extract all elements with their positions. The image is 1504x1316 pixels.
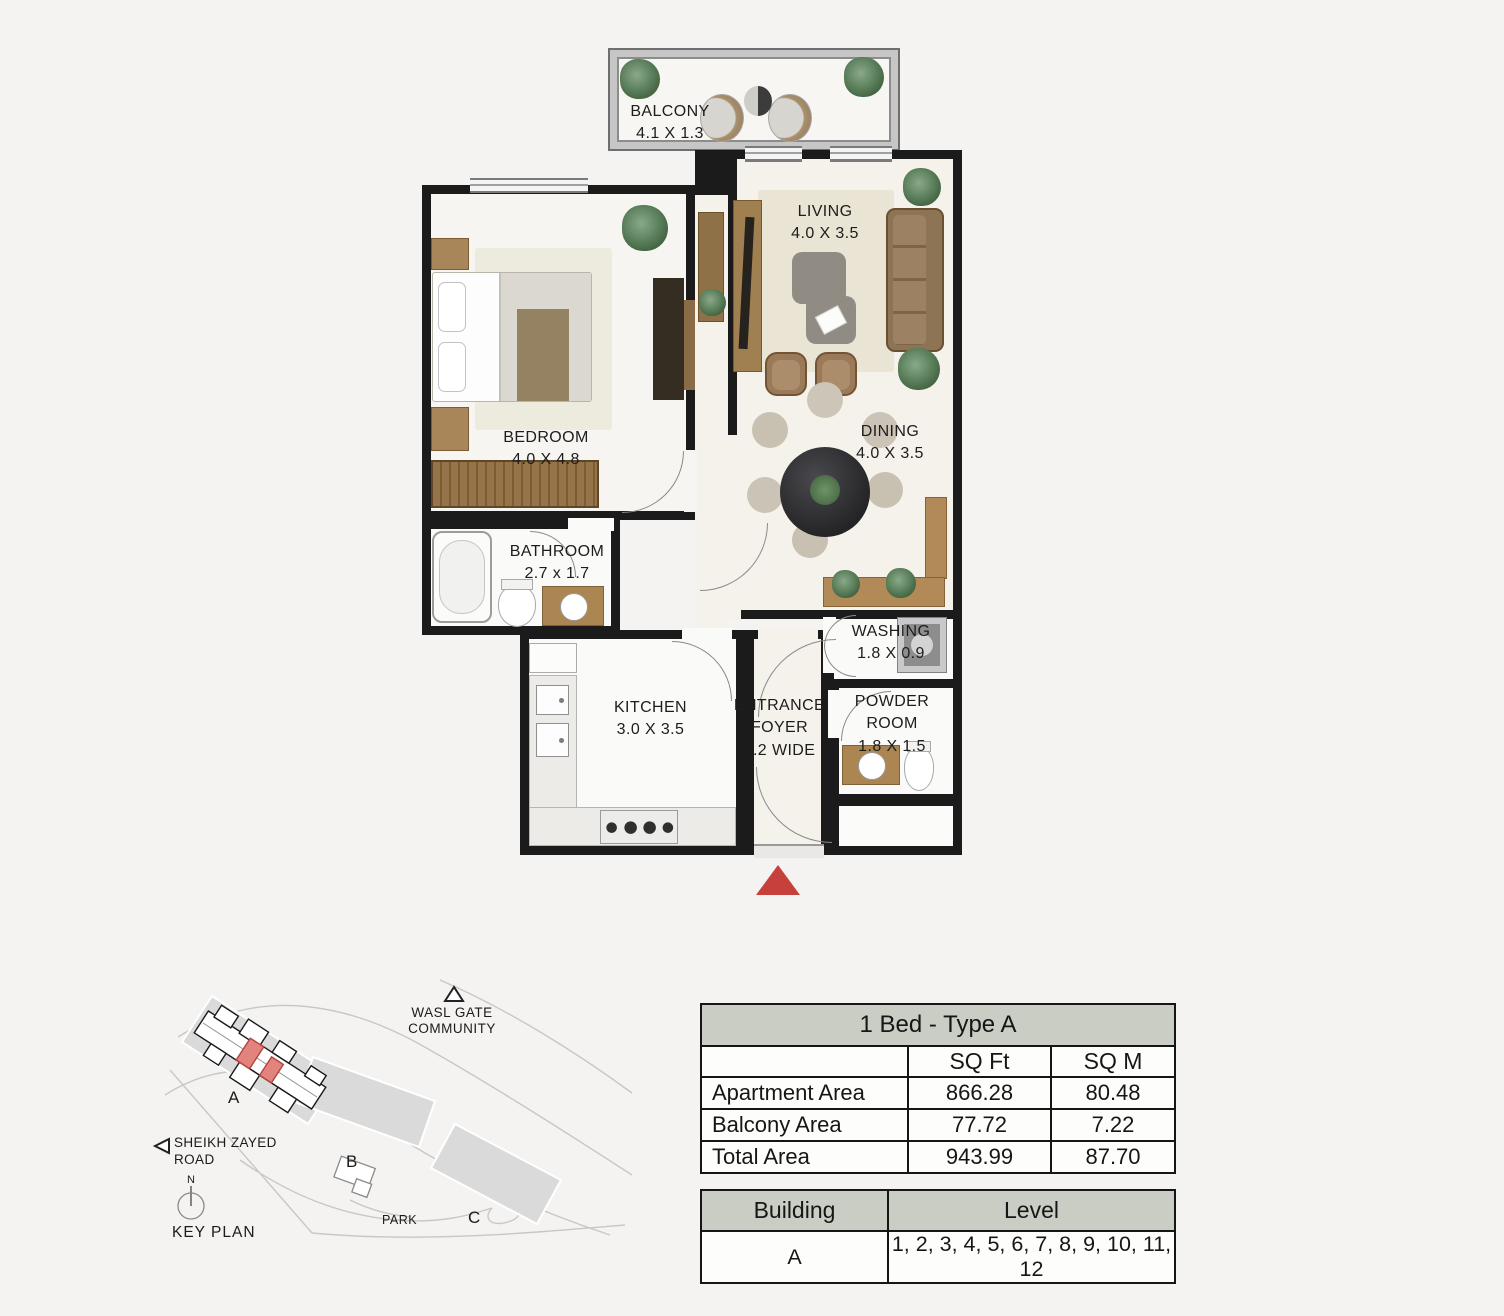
brochure-page: BALCONY 4.1 X 1.3 LIVING 4.0 X 3.5 BEDRO… (0, 0, 1504, 1316)
toilet (498, 585, 536, 627)
nightstand (431, 407, 469, 451)
bedroom-door-opening (684, 450, 697, 512)
table-row: Balcony Area 77.72 7.22 (701, 1109, 1175, 1141)
area-table: 1 Bed - Type A SQ Ft SQ M Apartment Area… (700, 1003, 1176, 1174)
room-name: BALCONY (614, 101, 726, 123)
table-row: Apartment Area 866.28 80.48 (701, 1077, 1175, 1109)
coffee-table (806, 296, 856, 344)
entrance-arrow-icon (756, 865, 800, 895)
entrance-foyer-label: ENTRANCE FOYER 1.2 WIDE (732, 695, 827, 762)
room-dims: 1.2 WIDE (732, 740, 827, 762)
kitchen-sink (536, 723, 569, 757)
living-media-unit (733, 200, 762, 372)
room-dims: 1.8 X 1.5 (846, 736, 938, 758)
balcony-side-table (744, 86, 772, 116)
area-row-sqm: 87.70 (1051, 1141, 1175, 1173)
area-table-sqft-header: SQ Ft (908, 1046, 1051, 1077)
bedroom-tv-panel (653, 278, 684, 400)
level-value: 1, 2, 3, 4, 5, 6, 7, 8, 9, 10, 11, 12 (888, 1231, 1175, 1283)
sofa (886, 208, 944, 352)
living-label: LIVING 4.0 X 3.5 (766, 201, 884, 246)
room-name: BEDROOM (486, 427, 606, 449)
entrance-opening (754, 844, 824, 858)
room-name: DINING (834, 421, 946, 443)
living-window-right (830, 146, 892, 162)
nightstand (431, 238, 469, 270)
room-dims: 4.0 X 3.5 (766, 223, 884, 245)
key-plan: WASL GATE COMMUNITY SHEIKH ZAYED ROAD A … (140, 975, 640, 1280)
bed-throw (517, 309, 569, 401)
plant (622, 205, 668, 251)
building-a-label: A (228, 1088, 240, 1107)
service-void (830, 797, 962, 855)
bathtub (432, 531, 492, 623)
area-table-title: 1 Bed - Type A (701, 1004, 1175, 1046)
room-name: LIVING (766, 201, 884, 223)
armchair (765, 352, 807, 396)
powder-room-label: POWDER ROOM 1.8 X 1.5 (846, 691, 938, 758)
area-row-sqft: 77.72 (908, 1109, 1051, 1141)
bed (432, 272, 592, 402)
plant (620, 59, 660, 99)
area-row-label: Balcony Area (701, 1109, 908, 1141)
key-plan-map: WASL GATE COMMUNITY SHEIKH ZAYED ROAD A … (140, 975, 640, 1280)
north-label: N (187, 1174, 195, 1186)
park-label: PARK (382, 1213, 417, 1227)
stove (600, 810, 678, 844)
area-table-empty-header (701, 1046, 908, 1077)
building-b-label: B (346, 1152, 357, 1171)
road-direction-icon (155, 1139, 169, 1153)
area-row-label: Apartment Area (701, 1077, 908, 1109)
community-label-line2: COMMUNITY (408, 1021, 496, 1036)
sideboard (925, 497, 947, 579)
room-name: WASHING (832, 621, 950, 643)
room-dims: 4.1 X 1.3 (614, 123, 726, 145)
road-label-line2: ROAD (174, 1152, 215, 1167)
table-row: Total Area 943.99 87.70 (701, 1141, 1175, 1173)
building-level-table: Building Level A 1, 2, 3, 4, 5, 6, 7, 8,… (700, 1189, 1176, 1284)
plant (844, 57, 884, 97)
floor-plan: BALCONY 4.1 X 1.3 LIVING 4.0 X 3.5 BEDRO… (420, 45, 972, 905)
level-header: Level (888, 1190, 1175, 1231)
bedroom-label: BEDROOM 4.0 X 4.8 (486, 427, 606, 472)
room-name: FOYER (732, 717, 827, 739)
room-dims: 2.7 x 1.7 (498, 563, 616, 585)
room-dims: 4.0 X 4.8 (486, 449, 606, 471)
area-row-sqft: 943.99 (908, 1141, 1051, 1173)
community-label-line1: WASL GATE (411, 1005, 492, 1020)
dining-chairs (807, 382, 843, 418)
vanity-sink (542, 586, 604, 626)
building-value: A (701, 1231, 888, 1283)
area-row-label: Total Area (701, 1141, 908, 1173)
area-table-sqm-header: SQ M (1051, 1046, 1175, 1077)
key-plan-title: KEY PLAN (172, 1224, 256, 1241)
plant (699, 289, 726, 316)
room-dims: 3.0 X 3.5 (598, 719, 703, 741)
room-dims: 1.8 X 0.9 (832, 643, 950, 665)
bedroom-shelf (684, 300, 695, 390)
washing-label: WASHING 1.8 X 0.9 (832, 621, 950, 666)
road-label-line1: SHEIKH ZAYED (174, 1135, 277, 1150)
kitchen-door-opening (682, 628, 732, 641)
bathroom-label: BATHROOM 2.7 x 1.7 (498, 541, 616, 586)
wall-stub (695, 150, 737, 195)
plant (898, 348, 940, 390)
room-name: POWDER (846, 691, 938, 713)
fridge (529, 643, 577, 673)
bedroom-window (470, 178, 588, 193)
bathroom-door-opening (568, 518, 614, 531)
kitchen-label: KITCHEN 3.0 X 3.5 (598, 697, 703, 742)
plant (886, 568, 916, 598)
room-name: KITCHEN (598, 697, 703, 719)
building-c-label: C (468, 1208, 480, 1227)
dining-label: DINING 4.0 X 3.5 (834, 421, 946, 466)
table-row: A 1, 2, 3, 4, 5, 6, 7, 8, 9, 10, 11, 12 (701, 1231, 1175, 1283)
area-row-sqft: 866.28 (908, 1077, 1051, 1109)
foyer-door-opening (758, 628, 818, 641)
room-dims: 4.0 X 3.5 (834, 443, 946, 465)
area-row-sqm: 80.48 (1051, 1077, 1175, 1109)
north-compass: N (178, 1174, 204, 1219)
area-row-sqm: 7.22 (1051, 1109, 1175, 1141)
balcony-label: BALCONY 4.1 X 1.3 (614, 101, 726, 146)
living-window-left (745, 146, 802, 162)
kitchen-sink (536, 685, 569, 715)
plant (832, 570, 860, 598)
building-header: Building (701, 1190, 888, 1231)
plant (903, 168, 941, 206)
room-name: ROOM (846, 713, 938, 735)
room-name: ENTRANCE (732, 695, 827, 717)
room-name: BATHROOM (498, 541, 616, 563)
balcony-chair (768, 94, 812, 142)
